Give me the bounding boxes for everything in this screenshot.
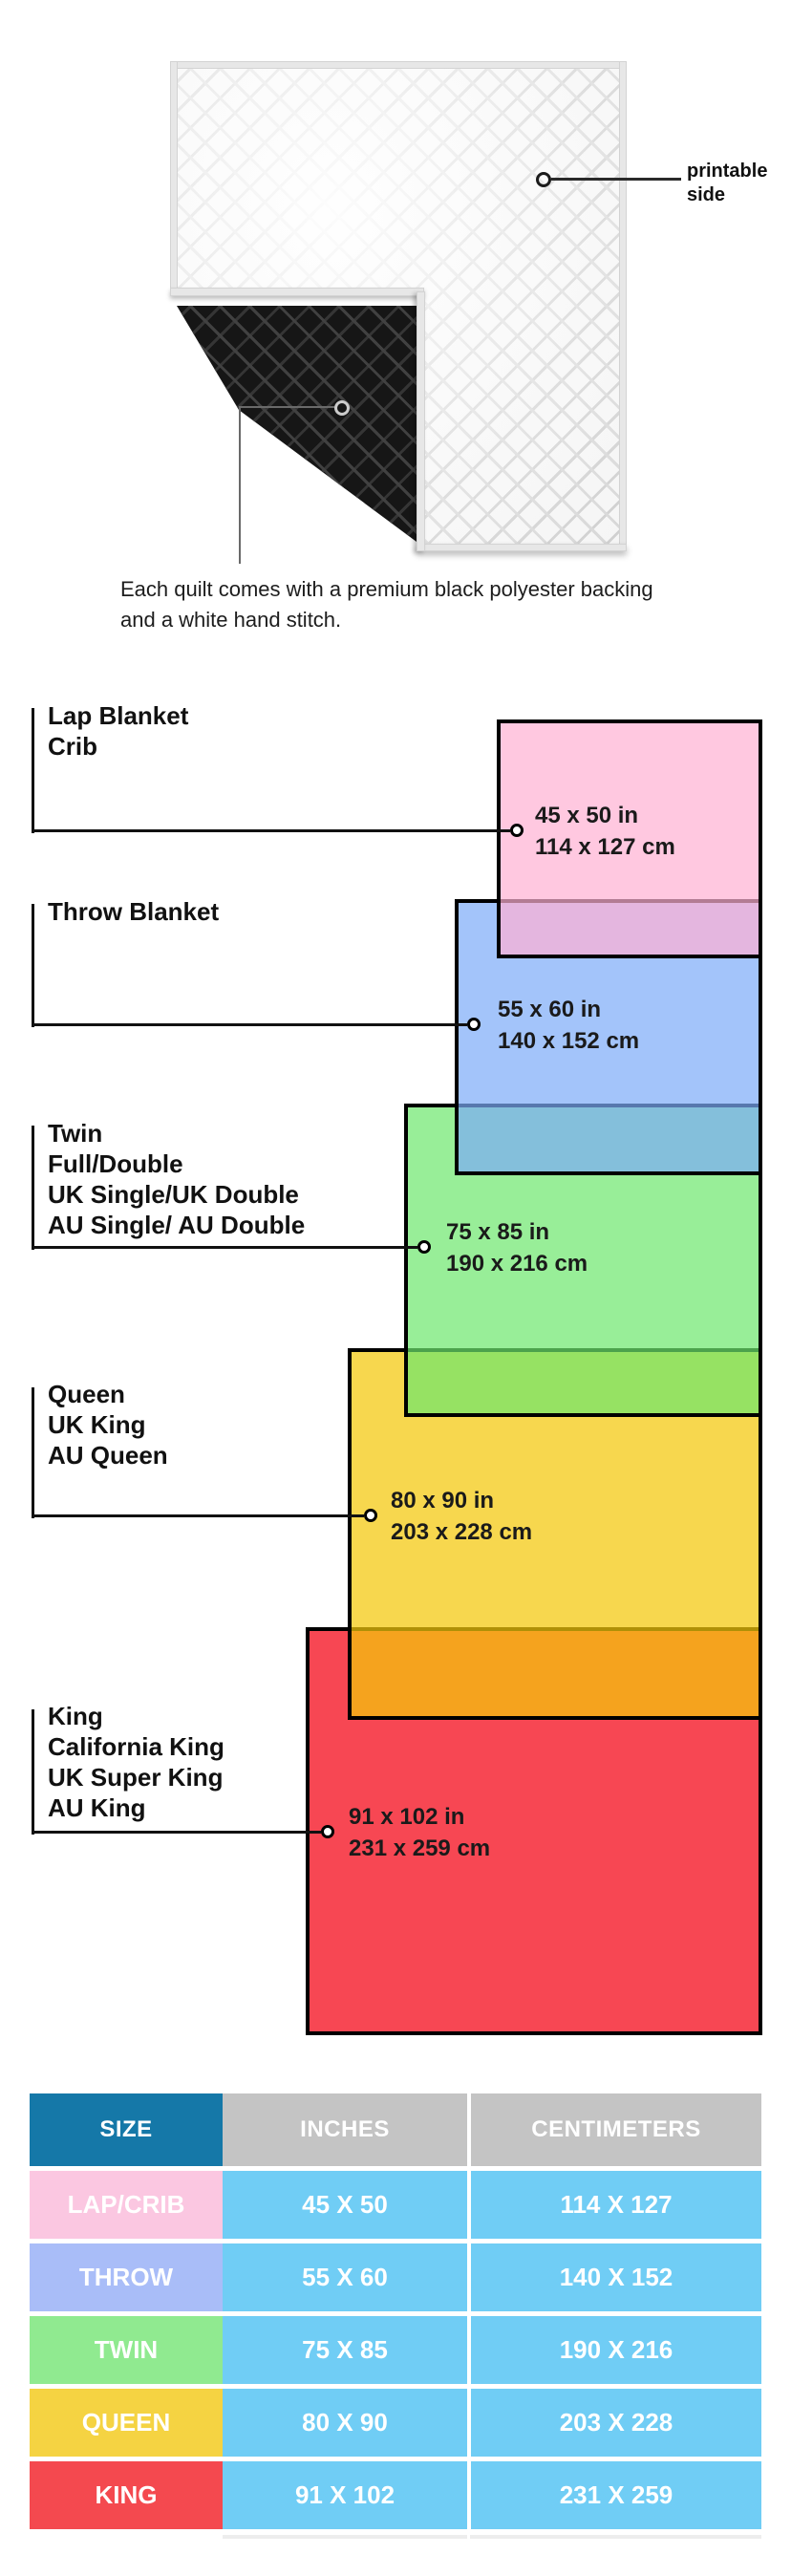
- dims-inches: 75 x 85 in: [446, 1216, 588, 1248]
- quilt-binding-bottom: [417, 544, 627, 551]
- table-shadow: [223, 2535, 467, 2539]
- table-row: THROW 55 X 60 140 X 152: [30, 2243, 761, 2311]
- dims-twin: 75 x 85 in 190 x 216 cm: [446, 1216, 588, 1279]
- callout-ring-icon: [321, 1825, 334, 1838]
- label-queen: Queen UK King AU Queen: [48, 1379, 168, 1470]
- row-size-label: KING: [30, 2461, 223, 2529]
- label-king: King California King UK Super King AU Ki…: [48, 1701, 224, 1823]
- label-line: Crib: [48, 731, 188, 762]
- row-inches-value: 91 X 102: [223, 2461, 467, 2529]
- quilt-fold-edge-horizontal: [170, 288, 424, 296]
- dims-inches: 80 x 90 in: [391, 1485, 532, 1516]
- table-row: KING 91 X 102 231 X 259: [30, 2461, 761, 2529]
- row-cm-value: 140 X 152: [471, 2243, 761, 2311]
- table-row: QUEEN 80 X 90 203 X 228: [30, 2389, 761, 2457]
- row-size-label: LAP/CRIB: [30, 2171, 223, 2239]
- table-row: LAP/CRIB 45 X 50 114 X 127: [30, 2171, 761, 2239]
- dims-inches: 91 x 102 in: [349, 1801, 490, 1833]
- callout-ring-icon: [467, 1018, 481, 1031]
- row-cm-value: 190 X 216: [471, 2316, 761, 2384]
- label-line: AU King: [48, 1792, 224, 1823]
- quilt-binding-right: [619, 61, 627, 551]
- callout-line: [32, 1831, 321, 1834]
- label-lap-crib: Lap Blanket Crib: [48, 700, 188, 762]
- size-guide-infographic: printable side Each quilt comes with a p…: [0, 0, 791, 2576]
- label-twin: Twin Full/Double UK Single/UK Double AU …: [48, 1118, 305, 1240]
- printable-side-label: printable side: [687, 160, 791, 207]
- callout-ring-icon: [417, 1240, 431, 1254]
- dims-lap-crib: 45 x 50 in 114 x 127 cm: [535, 800, 675, 863]
- label-line: UK King: [48, 1409, 168, 1440]
- label-line: Queen: [48, 1379, 168, 1409]
- callout-line: [32, 708, 34, 833]
- dims-inches: 55 x 60 in: [498, 994, 639, 1025]
- row-inches-value: 75 X 85: [223, 2316, 467, 2384]
- table-shadow: [470, 2535, 761, 2539]
- callout-line: [32, 1023, 467, 1026]
- quilt-binding-top: [170, 61, 627, 69]
- label-line: Full/Double: [48, 1148, 305, 1179]
- dims-cm: 140 x 152 cm: [498, 1025, 639, 1057]
- callout-ring-icon: [364, 1509, 377, 1522]
- dims-throw: 55 x 60 in 140 x 152 cm: [498, 994, 639, 1057]
- row-cm-value: 231 X 259: [471, 2461, 761, 2529]
- label-throw: Throw Blanket: [48, 896, 219, 927]
- dims-cm: 114 x 127 cm: [535, 831, 675, 863]
- callout-ring-icon: [510, 824, 524, 837]
- callout-line: [32, 1709, 34, 1835]
- callout-line: [239, 406, 334, 408]
- callout-line: [32, 904, 34, 1027]
- row-cm-value: 114 X 127: [471, 2171, 761, 2239]
- label-line: UK Super King: [48, 1762, 224, 1792]
- label-line: California King: [48, 1731, 224, 1762]
- label-line: AU Single/ AU Double: [48, 1210, 305, 1240]
- row-inches-value: 45 X 50: [223, 2171, 467, 2239]
- header-centimeters: CENTIMETERS: [471, 2093, 761, 2166]
- row-inches-value: 55 X 60: [223, 2243, 467, 2311]
- callout-line: [32, 1126, 34, 1250]
- callout-line: [32, 1514, 364, 1517]
- dims-cm: 231 x 259 cm: [349, 1833, 490, 1864]
- row-inches-value: 80 X 90: [223, 2389, 467, 2457]
- callout-ring-icon: [536, 172, 551, 187]
- callout-line: [32, 1246, 417, 1249]
- dims-inches: 45 x 50 in: [535, 800, 675, 831]
- quilt-fold-edge-vertical: [417, 291, 425, 551]
- row-size-label: TWIN: [30, 2316, 223, 2384]
- label-line: UK Single/UK Double: [48, 1179, 305, 1210]
- dims-queen: 80 x 90 in 203 x 228 cm: [391, 1485, 532, 1548]
- table-header-row: SIZE INCHES CENTIMETERS: [30, 2093, 761, 2166]
- header-size: SIZE: [30, 2093, 223, 2166]
- callout-line: [239, 406, 241, 564]
- label-line: King: [48, 1701, 224, 1731]
- label-line: AU Queen: [48, 1440, 168, 1470]
- label-line: Lap Blanket: [48, 700, 188, 731]
- dims-cm: 203 x 228 cm: [391, 1516, 532, 1548]
- quilt-binding-left: [170, 61, 178, 295]
- row-size-label: QUEEN: [30, 2389, 223, 2457]
- backing-caption: Each quilt comes with a premium black po…: [120, 574, 674, 635]
- label-line: Throw Blanket: [48, 896, 219, 927]
- dims-king: 91 x 102 in 231 x 259 cm: [349, 1801, 490, 1864]
- header-inches: INCHES: [223, 2093, 467, 2166]
- callout-line: [32, 829, 510, 832]
- callout-line: [551, 178, 681, 181]
- row-cm-value: 203 X 228: [471, 2389, 761, 2457]
- size-table: SIZE INCHES CENTIMETERS LAP/CRIB 45 X 50…: [30, 2093, 761, 2534]
- table-row: TWIN 75 X 85 190 X 216: [30, 2316, 761, 2384]
- dims-cm: 190 x 216 cm: [446, 1248, 588, 1279]
- row-size-label: THROW: [30, 2243, 223, 2311]
- callout-line: [32, 1387, 34, 1518]
- label-line: Twin: [48, 1118, 305, 1148]
- callout-ring-icon: [334, 400, 350, 416]
